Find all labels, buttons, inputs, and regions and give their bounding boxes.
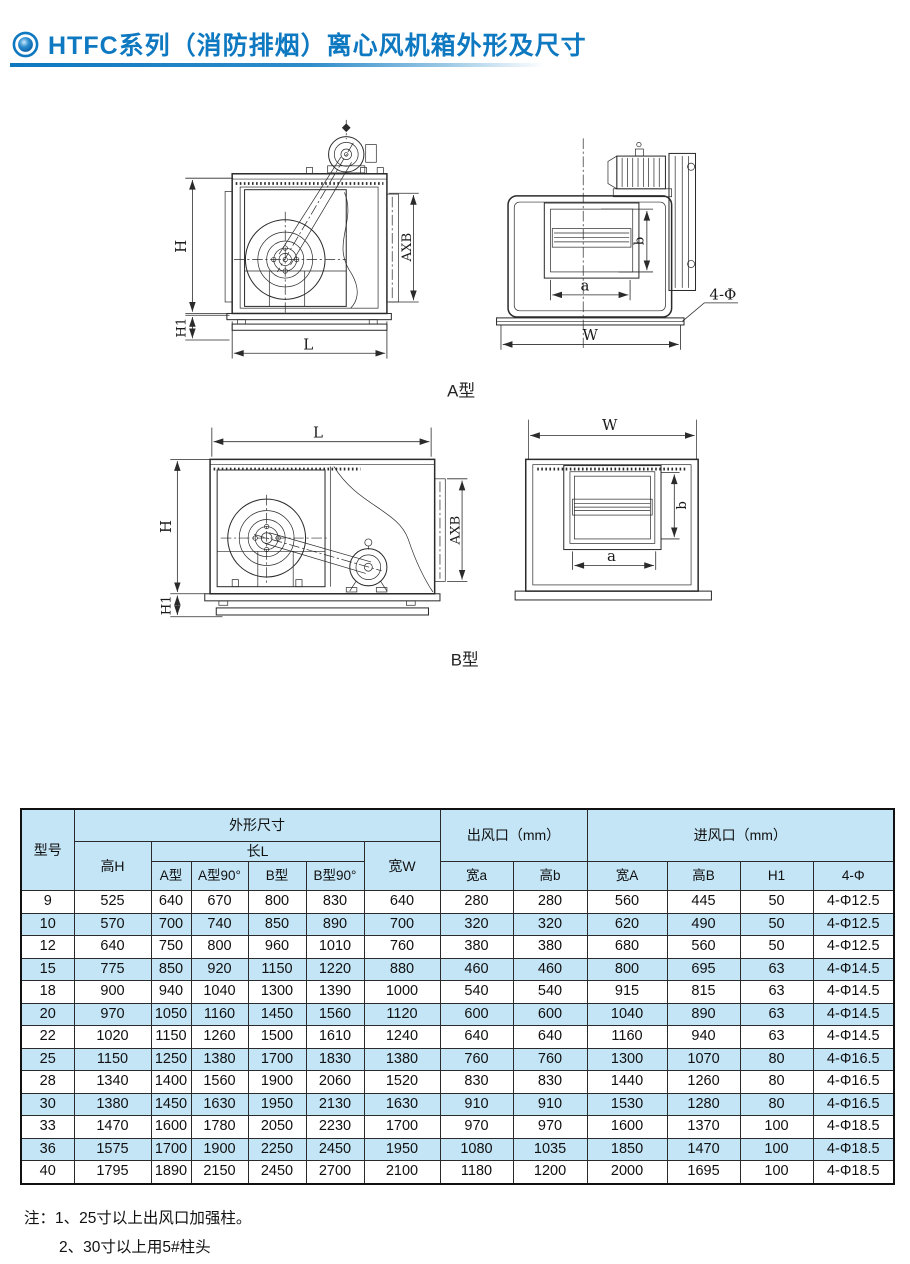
value-cell: 1080 xyxy=(440,1138,513,1161)
value-cell: 100 xyxy=(740,1138,813,1161)
value-cell: 1150 xyxy=(74,1048,151,1071)
value-cell: 4-Φ16.5 xyxy=(813,1093,894,1116)
value-cell: 1500 xyxy=(248,1026,306,1049)
dim-label-h-a: H xyxy=(172,240,190,253)
value-cell: 680 xyxy=(587,936,667,959)
dim-label-w-a: W xyxy=(583,326,599,344)
footnote-item-1: 1、25寸以上出风口加强柱。 xyxy=(55,1210,251,1227)
value-cell: 1050 xyxy=(151,1003,191,1026)
value-cell: 640 xyxy=(440,1026,513,1049)
value-cell: 830 xyxy=(306,891,364,914)
page-header: HTFC系列（消防排烟）离心风机箱外形及尺寸 xyxy=(12,26,587,62)
motor-b xyxy=(254,533,387,592)
value-cell: 1630 xyxy=(191,1093,248,1116)
col-header-h1: H1 xyxy=(740,862,813,891)
value-cell: 63 xyxy=(740,1003,813,1026)
value-cell: 2250 xyxy=(248,1138,306,1161)
value-cell: 600 xyxy=(513,1003,587,1026)
value-cell: 1900 xyxy=(191,1138,248,1161)
value-cell: 1520 xyxy=(364,1071,440,1094)
value-cell: 1560 xyxy=(191,1071,248,1094)
value-cell: 2230 xyxy=(306,1116,364,1139)
value-cell: 2130 xyxy=(306,1093,364,1116)
table-body: 9525640670800830640280280560445504-Φ12.5… xyxy=(21,891,894,1184)
value-cell: 4-Φ12.5 xyxy=(813,913,894,936)
table-row: 2511501250138017001830138076076013001070… xyxy=(21,1048,894,1071)
value-cell: 970 xyxy=(74,1003,151,1026)
value-cell: 900 xyxy=(74,981,151,1004)
col-header-length-l: 长L xyxy=(151,842,364,862)
value-cell: 970 xyxy=(440,1116,513,1139)
value-cell: 1040 xyxy=(191,981,248,1004)
diagram-a-side-view: b a W 4-Φ xyxy=(497,138,738,349)
page-title: HTFC系列（消防排烟）离心风机箱外形及尺寸 xyxy=(48,26,587,62)
value-cell: 560 xyxy=(667,936,740,959)
value-cell: 1575 xyxy=(74,1138,151,1161)
value-cell: 380 xyxy=(513,936,587,959)
col-header-outlet: 出风口（mm） xyxy=(440,809,587,862)
value-cell: 1370 xyxy=(667,1116,740,1139)
value-cell: 2450 xyxy=(306,1138,364,1161)
col-header-inlet-height-B: 高B xyxy=(667,862,740,891)
value-cell: 700 xyxy=(151,913,191,936)
value-cell: 1380 xyxy=(74,1093,151,1116)
dim-label-h1-b: H1 xyxy=(159,595,174,615)
table-row: 189009401040130013901000540540915815634-… xyxy=(21,981,894,1004)
value-cell: 80 xyxy=(740,1071,813,1094)
table-row: 10570700740850890700320320620490504-Φ12.… xyxy=(21,913,894,936)
value-cell: 1150 xyxy=(151,1026,191,1049)
value-cell: 2000 xyxy=(587,1161,667,1184)
technical-drawings: H H1 L AXB xyxy=(0,88,910,760)
col-header-outline: 外形尺寸 xyxy=(74,809,440,842)
value-cell: 1260 xyxy=(667,1071,740,1094)
value-cell: 815 xyxy=(667,981,740,1004)
value-cell: 1450 xyxy=(248,1003,306,1026)
diagram-b-side-view: W b a xyxy=(515,416,711,600)
table-row: 2097010501160145015601120600600104089063… xyxy=(21,1003,894,1026)
value-cell: 910 xyxy=(513,1093,587,1116)
value-cell: 1380 xyxy=(364,1048,440,1071)
value-cell: 1440 xyxy=(587,1071,667,1094)
value-cell: 540 xyxy=(513,981,587,1004)
value-cell: 800 xyxy=(191,936,248,959)
value-cell: 4-Φ18.5 xyxy=(813,1138,894,1161)
value-cell: 1040 xyxy=(587,1003,667,1026)
value-cell: 1250 xyxy=(151,1048,191,1071)
type-b-caption: B型 xyxy=(451,650,479,669)
value-cell: 100 xyxy=(740,1116,813,1139)
value-cell: 940 xyxy=(151,981,191,1004)
value-cell: 640 xyxy=(513,1026,587,1049)
value-cell: 1890 xyxy=(151,1161,191,1184)
dim-label-phi-a: 4-Φ xyxy=(709,285,736,303)
col-header-outlet-height-b: 高b xyxy=(513,862,587,891)
value-cell: 850 xyxy=(151,958,191,981)
type-a-caption: A型 xyxy=(447,382,475,401)
value-cell: 63 xyxy=(740,958,813,981)
value-cell: 700 xyxy=(364,913,440,936)
value-cell: 890 xyxy=(667,1003,740,1026)
value-cell: 1530 xyxy=(587,1093,667,1116)
value-cell: 1300 xyxy=(587,1048,667,1071)
value-cell: 940 xyxy=(667,1026,740,1049)
dim-label-a-a: a xyxy=(581,276,590,294)
value-cell: 1700 xyxy=(248,1048,306,1071)
model-cell: 40 xyxy=(21,1161,74,1184)
value-cell: 1000 xyxy=(364,981,440,1004)
value-cell: 460 xyxy=(440,958,513,981)
footnote-line-2: 2、30寸以上用5#柱头 xyxy=(24,1235,251,1257)
col-header-phi: 4-Φ xyxy=(813,862,894,891)
value-cell: 80 xyxy=(740,1048,813,1071)
value-cell: 640 xyxy=(151,891,191,914)
value-cell: 2060 xyxy=(306,1071,364,1094)
col-header-type-b: B型 xyxy=(248,862,306,891)
value-cell: 1450 xyxy=(151,1093,191,1116)
value-cell: 4-Φ12.5 xyxy=(813,936,894,959)
value-cell: 1830 xyxy=(306,1048,364,1071)
footnote-line-1: 注：1、25寸以上出风口加强柱。 xyxy=(24,1206,251,1228)
value-cell: 320 xyxy=(513,913,587,936)
col-header-inlet: 进风口（mm） xyxy=(587,809,894,862)
value-cell: 2050 xyxy=(248,1116,306,1139)
value-cell: 380 xyxy=(440,936,513,959)
col-header-type-a: A型 xyxy=(151,862,191,891)
value-cell: 50 xyxy=(740,891,813,914)
value-cell: 280 xyxy=(440,891,513,914)
value-cell: 2100 xyxy=(364,1161,440,1184)
value-cell: 4-Φ14.5 xyxy=(813,981,894,1004)
value-cell: 830 xyxy=(440,1071,513,1094)
value-cell: 1470 xyxy=(667,1138,740,1161)
value-cell: 640 xyxy=(364,891,440,914)
value-cell: 1900 xyxy=(248,1071,306,1094)
value-cell: 1950 xyxy=(248,1093,306,1116)
value-cell: 760 xyxy=(364,936,440,959)
value-cell: 1780 xyxy=(191,1116,248,1139)
value-cell: 670 xyxy=(191,891,248,914)
value-cell: 620 xyxy=(587,913,667,936)
dim-label-b-a: b xyxy=(632,237,647,245)
diagram-b-front-view: L xyxy=(157,423,467,616)
dim-label-axb-b: AXB xyxy=(448,516,463,546)
value-cell: 570 xyxy=(74,913,151,936)
value-cell: 880 xyxy=(364,958,440,981)
table-row: 1577585092011501220880460460800695634-Φ1… xyxy=(21,958,894,981)
value-cell: 1600 xyxy=(151,1116,191,1139)
value-cell: 1280 xyxy=(667,1093,740,1116)
value-cell: 320 xyxy=(440,913,513,936)
model-cell: 9 xyxy=(21,891,74,914)
value-cell: 890 xyxy=(306,913,364,936)
value-cell: 1070 xyxy=(667,1048,740,1071)
value-cell: 4-Φ14.5 xyxy=(813,1026,894,1049)
value-cell: 1300 xyxy=(248,981,306,1004)
value-cell: 800 xyxy=(587,958,667,981)
value-cell: 4-Φ14.5 xyxy=(813,1003,894,1026)
footnote-prefix: 注： xyxy=(24,1210,55,1227)
value-cell: 1260 xyxy=(191,1026,248,1049)
title-underline xyxy=(10,63,555,67)
table-row: 9525640670800830640280280560445504-Φ12.5 xyxy=(21,891,894,914)
value-cell: 2150 xyxy=(191,1161,248,1184)
value-cell: 1950 xyxy=(364,1138,440,1161)
table-row: 3615751700190022502450195010801035185014… xyxy=(21,1138,894,1161)
dim-label-w-b: W xyxy=(602,416,618,434)
model-cell: 33 xyxy=(21,1116,74,1139)
col-header-inlet-width-A: 宽A xyxy=(587,862,667,891)
table-row: 4017951890215024502700210011801200200016… xyxy=(21,1161,894,1184)
value-cell: 640 xyxy=(74,936,151,959)
value-cell: 1600 xyxy=(587,1116,667,1139)
value-cell: 910 xyxy=(440,1093,513,1116)
value-cell: 1160 xyxy=(587,1026,667,1049)
value-cell: 80 xyxy=(740,1093,813,1116)
value-cell: 1380 xyxy=(191,1048,248,1071)
col-header-height-h: 高H xyxy=(74,842,151,891)
value-cell: 800 xyxy=(248,891,306,914)
footnotes: 注：1、25寸以上出风口加强柱。 2、30寸以上用5#柱头 xyxy=(24,1206,251,1257)
value-cell: 1010 xyxy=(306,936,364,959)
col-header-width-w: 宽W xyxy=(364,842,440,891)
value-cell: 460 xyxy=(513,958,587,981)
value-cell: 1700 xyxy=(151,1138,191,1161)
table-header: 型号 外形尺寸 出风口（mm） 进风口（mm） 高H 长L 宽W A型 A型90… xyxy=(21,809,894,891)
value-cell: 600 xyxy=(440,1003,513,1026)
value-cell: 1850 xyxy=(587,1138,667,1161)
value-cell: 850 xyxy=(248,913,306,936)
col-header-model: 型号 xyxy=(21,809,74,891)
col-header-type-b90: B型90° xyxy=(306,862,364,891)
dim-label-a-b: a xyxy=(607,547,616,565)
table-row: 3314701600178020502230170097097016001370… xyxy=(21,1116,894,1139)
value-cell: 970 xyxy=(513,1116,587,1139)
table-row: 126407508009601010760380380680560504-Φ12… xyxy=(21,936,894,959)
value-cell: 1035 xyxy=(513,1138,587,1161)
value-cell: 4-Φ18.5 xyxy=(813,1161,894,1184)
value-cell: 4-Φ12.5 xyxy=(813,891,894,914)
value-cell: 960 xyxy=(248,936,306,959)
section-bullet-icon xyxy=(12,31,39,58)
value-cell: 695 xyxy=(667,958,740,981)
table-row: 2813401400156019002060152083083014401260… xyxy=(21,1071,894,1094)
value-cell: 1220 xyxy=(306,958,364,981)
value-cell: 920 xyxy=(191,958,248,981)
value-cell: 1700 xyxy=(364,1116,440,1139)
value-cell: 1390 xyxy=(306,981,364,1004)
dim-label-l-a: L xyxy=(303,336,313,354)
value-cell: 4-Φ16.5 xyxy=(813,1071,894,1094)
value-cell: 775 xyxy=(74,958,151,981)
model-cell: 30 xyxy=(21,1093,74,1116)
value-cell: 2450 xyxy=(248,1161,306,1184)
dim-label-axb-a: AXB xyxy=(400,233,415,263)
value-cell: 750 xyxy=(151,936,191,959)
value-cell: 100 xyxy=(740,1161,813,1184)
value-cell: 1470 xyxy=(74,1116,151,1139)
value-cell: 540 xyxy=(440,981,513,1004)
value-cell: 1560 xyxy=(306,1003,364,1026)
value-cell: 760 xyxy=(513,1048,587,1071)
footnote-item-2: 2、30寸以上用5#柱头 xyxy=(59,1239,211,1256)
value-cell: 830 xyxy=(513,1071,587,1094)
model-cell: 36 xyxy=(21,1138,74,1161)
value-cell: 1340 xyxy=(74,1071,151,1094)
value-cell: 1240 xyxy=(364,1026,440,1049)
model-cell: 12 xyxy=(21,936,74,959)
model-cell: 22 xyxy=(21,1026,74,1049)
value-cell: 1120 xyxy=(364,1003,440,1026)
value-cell: 4-Φ14.5 xyxy=(813,958,894,981)
model-cell: 28 xyxy=(21,1071,74,1094)
model-cell: 10 xyxy=(21,913,74,936)
value-cell: 1630 xyxy=(364,1093,440,1116)
col-header-outlet-width-a: 宽a xyxy=(440,862,513,891)
value-cell: 1795 xyxy=(74,1161,151,1184)
value-cell: 50 xyxy=(740,936,813,959)
value-cell: 1180 xyxy=(440,1161,513,1184)
motor-a xyxy=(277,120,376,272)
model-cell: 25 xyxy=(21,1048,74,1071)
table-row: 2210201150126015001610124064064011609406… xyxy=(21,1026,894,1049)
value-cell: 4-Φ16.5 xyxy=(813,1048,894,1071)
fan-wheel-a xyxy=(234,212,346,313)
value-cell: 63 xyxy=(740,981,813,1004)
value-cell: 4-Φ18.5 xyxy=(813,1116,894,1139)
dim-label-h1-a: H1 xyxy=(174,318,189,338)
model-cell: 20 xyxy=(21,1003,74,1026)
dim-label-b-b: b xyxy=(675,501,690,509)
value-cell: 760 xyxy=(440,1048,513,1071)
col-header-type-a90: A型90° xyxy=(191,862,248,891)
value-cell: 2700 xyxy=(306,1161,364,1184)
value-cell: 490 xyxy=(667,913,740,936)
dimensions-table: 型号 外形尺寸 出风口（mm） 进风口（mm） 高H 长L 宽W A型 A型90… xyxy=(20,808,895,1185)
value-cell: 1200 xyxy=(513,1161,587,1184)
model-cell: 15 xyxy=(21,958,74,981)
value-cell: 740 xyxy=(191,913,248,936)
value-cell: 280 xyxy=(513,891,587,914)
value-cell: 1610 xyxy=(306,1026,364,1049)
model-cell: 18 xyxy=(21,981,74,1004)
value-cell: 445 xyxy=(667,891,740,914)
value-cell: 915 xyxy=(587,981,667,1004)
value-cell: 1020 xyxy=(74,1026,151,1049)
value-cell: 50 xyxy=(740,913,813,936)
diagram-a-front-view: H H1 L AXB xyxy=(172,120,419,359)
value-cell: 1695 xyxy=(667,1161,740,1184)
motor-a-side xyxy=(608,142,672,196)
value-cell: 1160 xyxy=(191,1003,248,1026)
value-cell: 63 xyxy=(740,1026,813,1049)
value-cell: 560 xyxy=(587,891,667,914)
value-cell: 1150 xyxy=(248,958,306,981)
value-cell: 525 xyxy=(74,891,151,914)
value-cell: 1400 xyxy=(151,1071,191,1094)
dim-label-h-b: H xyxy=(157,520,175,533)
dim-label-l-b: L xyxy=(313,423,323,441)
table-row: 3013801450163019502130163091091015301280… xyxy=(21,1093,894,1116)
